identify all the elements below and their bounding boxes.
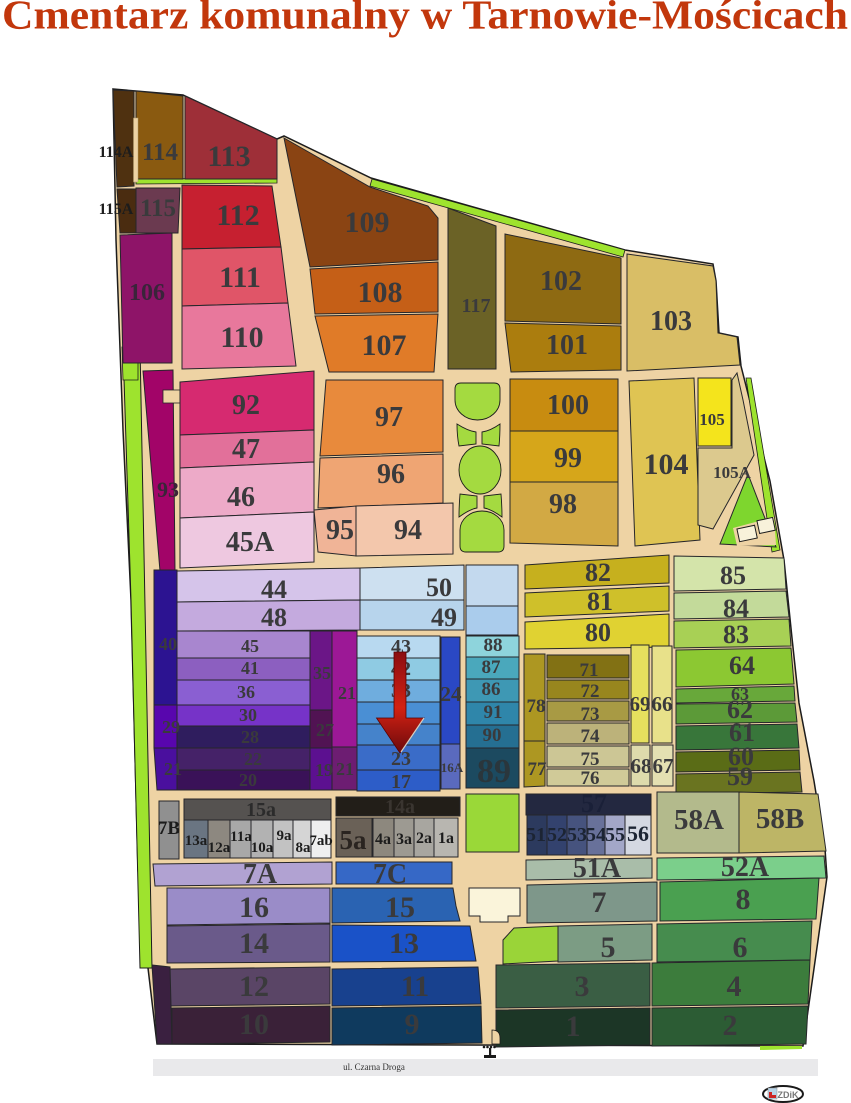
svg-text:114: 114 [142,139,179,166]
svg-text:51: 51 [526,824,546,846]
svg-text:5: 5 [601,931,616,964]
svg-text:83: 83 [723,620,749,649]
svg-text:76: 76 [581,768,600,789]
svg-text:7A: 7A [243,859,278,890]
svg-text:88: 88 [484,635,503,656]
svg-text:35: 35 [313,663,331,683]
svg-text:86: 86 [482,679,501,700]
svg-text:47: 47 [232,434,260,465]
svg-text:3: 3 [575,970,590,1003]
svg-text:7ab: 7ab [309,833,332,849]
svg-text:58A: 58A [674,804,724,836]
svg-text:69: 69 [630,692,651,716]
svg-text:53: 53 [567,824,587,846]
svg-text:78: 78 [527,696,546,717]
svg-text:ZDiK: ZDiK [778,1090,799,1100]
svg-text:1a: 1a [438,830,454,847]
svg-text:55: 55 [605,824,625,846]
svg-text:66: 66 [652,692,673,716]
svg-text:99: 99 [554,443,582,474]
svg-text:71: 71 [580,660,599,681]
svg-text:40: 40 [159,634,177,654]
svg-text:7: 7 [592,886,607,919]
svg-text:50: 50 [426,573,452,602]
svg-text:28: 28 [241,727,259,747]
svg-text:59: 59 [727,762,753,791]
svg-text:17: 17 [391,771,411,793]
svg-text:107: 107 [362,329,407,362]
svg-text:7C: 7C [373,859,407,890]
svg-text:16A: 16A [441,760,464,775]
svg-text:102: 102 [540,266,582,297]
svg-text:13: 13 [389,927,419,960]
svg-text:10a: 10a [251,840,274,856]
svg-text:21: 21 [338,683,356,703]
svg-text:68: 68 [631,754,652,778]
svg-text:57: 57 [581,789,607,818]
svg-text:85: 85 [720,561,746,590]
svg-text:48: 48 [261,603,287,632]
svg-text:11: 11 [401,970,429,1003]
svg-text:2: 2 [723,1009,738,1042]
svg-text:8: 8 [736,883,751,916]
svg-text:19: 19 [315,760,333,780]
svg-text:49: 49 [431,603,457,632]
svg-text:4: 4 [727,970,742,1003]
svg-text:41: 41 [241,658,259,678]
svg-text:113: 113 [207,140,250,173]
svg-text:93: 93 [157,477,179,502]
svg-text:44: 44 [261,575,287,604]
svg-text:16: 16 [239,891,269,924]
svg-text:4a: 4a [375,831,391,848]
svg-text:96: 96 [377,459,405,490]
svg-text:11a: 11a [230,829,252,845]
svg-text:82: 82 [585,558,611,587]
svg-text:7B: 7B [158,818,181,839]
svg-text:46: 46 [227,482,255,513]
svg-text:81: 81 [587,587,613,616]
svg-text:115: 115 [140,195,176,222]
svg-text:94: 94 [394,515,422,546]
svg-text:51A: 51A [573,853,622,884]
svg-text:20: 20 [239,770,257,790]
svg-text:13a: 13a [185,833,208,849]
svg-text:Cmentarz komunalny w Tarnowie-: Cmentarz komunalny w Tarnowie-Mościcach [2,0,848,38]
svg-text:80: 80 [585,618,611,647]
svg-text:56: 56 [627,821,649,846]
svg-text:117: 117 [462,295,491,317]
svg-text:77: 77 [528,759,548,780]
svg-text:98: 98 [549,489,577,520]
svg-text:103: 103 [650,306,692,337]
svg-text:95: 95 [326,515,354,546]
svg-text:104: 104 [644,448,689,481]
svg-text:75: 75 [581,749,600,770]
svg-text:9a: 9a [277,828,293,844]
svg-text:58B: 58B [756,803,804,835]
svg-text:109: 109 [345,206,390,239]
svg-text:3a: 3a [396,831,412,848]
svg-text:105: 105 [699,410,725,429]
svg-text:14a: 14a [385,796,415,818]
svg-text:30: 30 [239,705,257,725]
svg-text:115A: 115A [99,201,134,218]
svg-text:52A: 52A [721,852,770,883]
svg-text:22: 22 [244,749,262,769]
svg-text:106: 106 [129,280,165,306]
svg-text:87: 87 [482,657,502,678]
svg-text:10: 10 [239,1008,269,1041]
svg-text:64: 64 [729,651,755,680]
svg-text:6: 6 [733,931,748,964]
svg-text:36: 36 [237,682,255,702]
svg-text:ul. Czarna Droga: ul. Czarna Droga [343,1062,405,1072]
svg-text:97: 97 [375,402,403,433]
svg-text:54: 54 [586,824,606,846]
svg-text:21: 21 [164,759,182,779]
svg-text:9: 9 [405,1008,420,1041]
svg-text:90: 90 [483,725,502,746]
svg-text:2a: 2a [416,830,432,847]
svg-text:15: 15 [385,891,415,924]
svg-text:27: 27 [316,720,334,740]
svg-text:29: 29 [162,717,180,737]
svg-text:1: 1 [566,1010,581,1043]
svg-text:101: 101 [546,330,588,361]
svg-text:89: 89 [477,753,511,790]
svg-text:45: 45 [241,636,259,656]
svg-text:24: 24 [441,682,463,706]
svg-text:111: 111 [219,261,261,294]
svg-text:91: 91 [484,702,503,723]
svg-text:21: 21 [336,759,354,779]
svg-text:92: 92 [232,390,260,421]
svg-text:110: 110 [220,321,263,354]
svg-text:12a: 12a [208,840,231,856]
svg-text:52: 52 [547,824,567,846]
svg-text:100: 100 [547,390,589,421]
svg-text:74: 74 [581,726,601,747]
svg-text:45A: 45A [226,527,275,558]
svg-text:105A: 105A [713,463,752,482]
svg-text:15a: 15a [246,799,276,821]
svg-text:84: 84 [723,594,749,623]
svg-text:5a: 5a [340,825,368,855]
svg-text:73: 73 [581,704,600,725]
svg-text:114A: 114A [99,144,134,161]
svg-text:108: 108 [358,276,403,309]
svg-text:112: 112 [216,199,259,232]
svg-text:14: 14 [239,927,269,960]
svg-text:12: 12 [239,970,269,1003]
svg-text:72: 72 [581,681,600,702]
svg-text:67: 67 [653,754,674,778]
